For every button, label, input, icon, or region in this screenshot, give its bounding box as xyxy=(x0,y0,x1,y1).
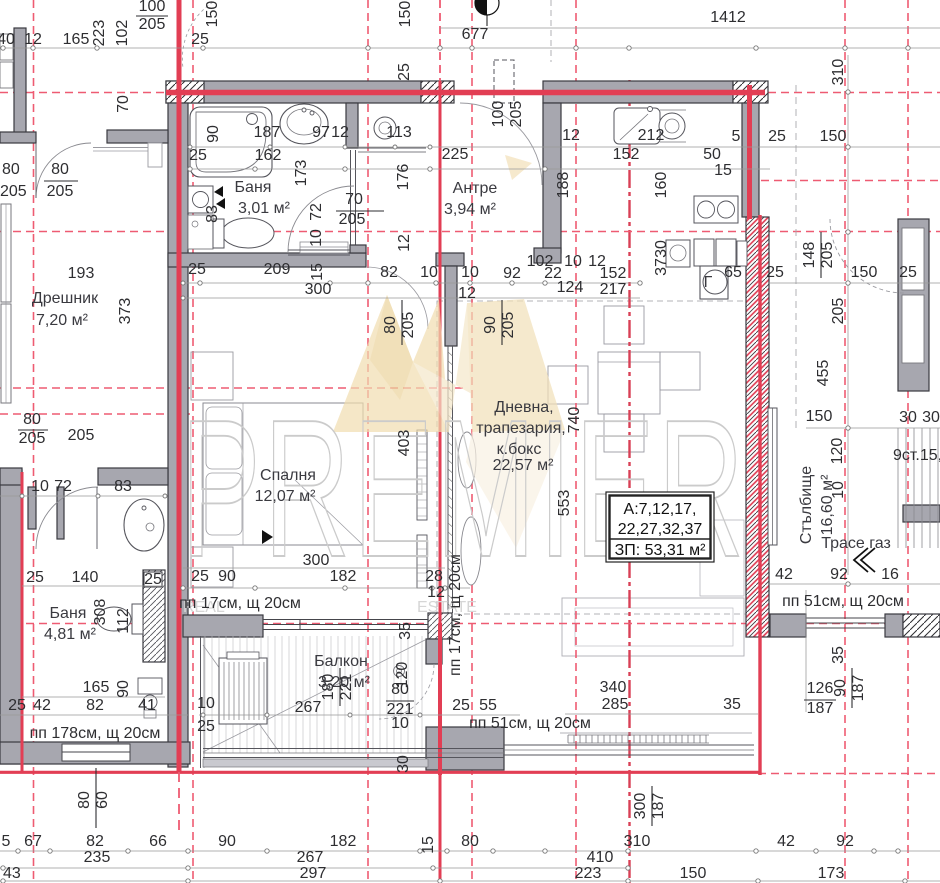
svg-text:188: 188 xyxy=(555,172,572,199)
svg-text:25: 25 xyxy=(26,569,44,586)
svg-text:пп 17см, щ 20см: пп 17см, щ 20см xyxy=(179,595,301,612)
svg-text:205: 205 xyxy=(139,16,166,33)
svg-text:160: 160 xyxy=(653,172,670,199)
svg-text:373: 373 xyxy=(117,298,134,325)
svg-text:40: 40 xyxy=(0,31,15,48)
svg-text:37: 37 xyxy=(653,258,670,276)
svg-text:35: 35 xyxy=(723,696,741,713)
svg-text:3,01 м²: 3,01 м² xyxy=(238,200,291,217)
svg-text:к.бокс: к.бокс xyxy=(497,441,542,458)
svg-text:152: 152 xyxy=(600,265,627,282)
svg-text:182: 182 xyxy=(330,833,357,850)
svg-text:92: 92 xyxy=(836,833,854,850)
svg-text:25: 25 xyxy=(191,31,209,48)
svg-text:223: 223 xyxy=(575,865,602,882)
svg-text:403: 403 xyxy=(396,430,413,457)
svg-text:12: 12 xyxy=(562,127,580,144)
svg-text:212: 212 xyxy=(638,127,665,144)
svg-text:70: 70 xyxy=(345,191,363,208)
svg-text:173: 173 xyxy=(293,160,310,187)
svg-text:176: 176 xyxy=(395,164,412,191)
svg-text:Баня: Баня xyxy=(50,605,87,622)
svg-text:223: 223 xyxy=(91,20,108,47)
svg-text:55: 55 xyxy=(479,697,497,714)
svg-text:16: 16 xyxy=(881,566,899,583)
svg-text:112: 112 xyxy=(115,608,132,634)
svg-text:12: 12 xyxy=(458,285,476,302)
svg-text:5: 5 xyxy=(2,833,11,850)
svg-text:15: 15 xyxy=(714,162,732,179)
svg-text:205: 205 xyxy=(508,101,525,128)
svg-text:4,81 м²: 4,81 м² xyxy=(44,626,97,643)
svg-text:5: 5 xyxy=(732,128,741,145)
svg-text:10: 10 xyxy=(197,695,215,712)
svg-text:пп 51см, щ 20см: пп 51см, щ 20см xyxy=(782,593,904,610)
svg-text:1412: 1412 xyxy=(710,9,746,26)
svg-text:10: 10 xyxy=(830,481,847,499)
svg-text:90: 90 xyxy=(832,679,849,697)
svg-text:205: 205 xyxy=(830,298,847,325)
svg-text:90: 90 xyxy=(218,568,236,585)
svg-text:25: 25 xyxy=(191,568,209,585)
svg-text:25: 25 xyxy=(396,63,413,81)
svg-text:80: 80 xyxy=(51,161,69,178)
svg-text:205: 205 xyxy=(819,242,836,269)
svg-text:300: 300 xyxy=(305,281,332,298)
svg-text:82: 82 xyxy=(380,264,398,281)
svg-text:82: 82 xyxy=(86,833,104,850)
svg-text:72: 72 xyxy=(308,203,325,221)
svg-text:50: 50 xyxy=(703,146,721,163)
svg-text:41: 41 xyxy=(138,697,156,714)
svg-text:187: 187 xyxy=(850,675,867,702)
svg-text:90: 90 xyxy=(482,316,499,334)
svg-text:182: 182 xyxy=(330,568,357,585)
svg-text:65: 65 xyxy=(724,264,742,281)
svg-text:3,94 м²: 3,94 м² xyxy=(444,201,497,218)
svg-text:Трасе газ: Трасе газ xyxy=(821,535,891,552)
svg-text:193: 193 xyxy=(68,265,95,282)
svg-text:677: 677 xyxy=(462,26,489,43)
svg-text:80: 80 xyxy=(23,411,41,428)
svg-text:340: 340 xyxy=(600,679,627,696)
svg-text:165: 165 xyxy=(63,31,90,48)
svg-text:67: 67 xyxy=(24,833,42,850)
svg-text:Спалня: Спалня xyxy=(260,467,316,484)
svg-text:205: 205 xyxy=(500,312,517,339)
svg-text:30: 30 xyxy=(922,409,940,426)
svg-text:Дрешник: Дрешник xyxy=(32,290,99,307)
svg-text:410: 410 xyxy=(587,849,614,866)
svg-text:35: 35 xyxy=(397,622,414,640)
svg-text:113: 113 xyxy=(386,124,412,141)
svg-text:пп 17см, щ 20см: пп 17см, щ 20см xyxy=(447,554,464,676)
svg-text:165: 165 xyxy=(83,679,110,696)
svg-text:пп 178см, щ 20см: пп 178см, щ 20см xyxy=(30,725,161,742)
svg-text:310: 310 xyxy=(830,59,847,86)
svg-text:30: 30 xyxy=(395,755,412,773)
svg-text:173: 173 xyxy=(818,865,845,882)
svg-text:10: 10 xyxy=(461,264,479,281)
svg-text:308: 308 xyxy=(92,599,109,626)
svg-text:187: 187 xyxy=(650,793,667,820)
svg-text:15: 15 xyxy=(420,836,437,854)
svg-text:285: 285 xyxy=(602,696,629,713)
svg-text:А:7,12,17,: А:7,12,17, xyxy=(624,501,697,518)
svg-text:267: 267 xyxy=(297,849,324,866)
svg-text:235: 235 xyxy=(84,849,111,866)
svg-text:150: 150 xyxy=(851,264,878,281)
svg-text:Балкон: Балкон xyxy=(314,653,368,670)
svg-text:66: 66 xyxy=(149,833,167,850)
svg-text:10: 10 xyxy=(31,478,49,495)
svg-text:10: 10 xyxy=(391,715,409,732)
svg-text:Стълбище: Стълбище xyxy=(798,466,815,544)
svg-text:97: 97 xyxy=(312,124,330,141)
svg-text:80: 80 xyxy=(382,316,399,334)
svg-text:25: 25 xyxy=(768,128,786,145)
svg-text:25: 25 xyxy=(766,264,784,281)
svg-text:297: 297 xyxy=(300,865,327,882)
svg-text:80: 80 xyxy=(2,161,20,178)
svg-text:126: 126 xyxy=(807,680,834,697)
svg-text:43: 43 xyxy=(3,865,21,882)
svg-text:92: 92 xyxy=(503,265,521,282)
svg-text:Г: Г xyxy=(704,274,713,291)
svg-text:205: 205 xyxy=(47,183,74,200)
svg-text:80: 80 xyxy=(76,791,93,809)
svg-text:10: 10 xyxy=(308,229,325,247)
svg-text:42: 42 xyxy=(777,833,795,850)
svg-text:22,57 м²: 22,57 м² xyxy=(493,457,554,474)
svg-text:35: 35 xyxy=(830,646,847,664)
svg-text:553: 553 xyxy=(556,490,573,517)
svg-text:25: 25 xyxy=(188,261,206,278)
svg-text:трапезария,: трапезария, xyxy=(476,420,566,437)
svg-text:102: 102 xyxy=(114,20,131,47)
svg-text:30: 30 xyxy=(653,240,670,258)
svg-text:90: 90 xyxy=(115,680,132,698)
svg-text:83: 83 xyxy=(204,205,221,223)
svg-text:30: 30 xyxy=(899,409,917,426)
svg-text:7,20 м²: 7,20 м² xyxy=(36,312,89,329)
svg-text:150: 150 xyxy=(820,128,847,145)
svg-text:455: 455 xyxy=(815,360,832,387)
svg-text:205: 205 xyxy=(339,211,366,228)
svg-text:310: 310 xyxy=(624,833,651,850)
svg-text:209: 209 xyxy=(264,261,291,278)
svg-text:148: 148 xyxy=(801,242,818,269)
svg-text:70: 70 xyxy=(115,95,132,113)
svg-text:ЗП: 53,31 м²: ЗП: 53,31 м² xyxy=(615,542,707,559)
svg-text:42: 42 xyxy=(775,566,793,583)
svg-text:28: 28 xyxy=(425,568,443,585)
svg-text:25: 25 xyxy=(899,264,917,281)
svg-text:12: 12 xyxy=(24,31,42,48)
svg-text:124: 124 xyxy=(557,279,584,296)
svg-text:205: 205 xyxy=(400,312,417,339)
svg-text:100: 100 xyxy=(139,0,166,15)
svg-text:42: 42 xyxy=(33,697,51,714)
svg-text:22,27,32,37: 22,27,32,37 xyxy=(618,521,703,538)
svg-text:187: 187 xyxy=(807,700,834,717)
svg-text:Баня: Баня xyxy=(235,179,272,196)
svg-text:12,07 м²: 12,07 м² xyxy=(255,488,316,505)
svg-text:205: 205 xyxy=(19,430,46,447)
svg-text:Антре: Антре xyxy=(453,180,498,197)
svg-text:12: 12 xyxy=(427,584,445,601)
svg-text:25: 25 xyxy=(452,697,470,714)
svg-text:90: 90 xyxy=(218,833,236,850)
svg-text:267: 267 xyxy=(295,699,322,716)
svg-text:300: 300 xyxy=(632,793,649,820)
svg-text:150: 150 xyxy=(397,1,414,28)
svg-text:3,20 м²: 3,20 м² xyxy=(318,674,371,691)
svg-text:120: 120 xyxy=(829,438,846,465)
svg-text:9ст.15,8: 9ст.15,8 xyxy=(893,447,940,464)
svg-text:150: 150 xyxy=(680,865,707,882)
svg-text:15: 15 xyxy=(309,263,326,281)
svg-text:25: 25 xyxy=(144,571,162,588)
svg-text:92: 92 xyxy=(830,566,848,583)
svg-text:100: 100 xyxy=(490,101,507,128)
svg-text:25: 25 xyxy=(189,147,207,164)
svg-text:162: 162 xyxy=(255,147,282,164)
svg-text:140: 140 xyxy=(72,569,99,586)
svg-text:82: 82 xyxy=(86,697,104,714)
svg-text:10: 10 xyxy=(564,253,582,270)
svg-text:150: 150 xyxy=(204,1,221,28)
svg-text:225: 225 xyxy=(442,146,469,163)
svg-text:12: 12 xyxy=(331,124,349,141)
svg-text:90: 90 xyxy=(205,125,222,143)
svg-text:150: 150 xyxy=(806,408,833,425)
svg-text:пп 51см, щ 20см: пп 51см, щ 20см xyxy=(469,715,591,732)
svg-text:152: 152 xyxy=(613,146,640,163)
svg-text:120: 120 xyxy=(394,662,411,689)
svg-text:83: 83 xyxy=(114,478,132,495)
svg-text:25: 25 xyxy=(8,697,26,714)
svg-text:25: 25 xyxy=(197,718,215,735)
svg-text:60: 60 xyxy=(94,791,111,809)
svg-text:205: 205 xyxy=(68,427,95,444)
svg-text:187: 187 xyxy=(254,124,281,141)
svg-text:Дневна,: Дневна, xyxy=(494,399,553,416)
svg-text:740: 740 xyxy=(566,407,583,434)
svg-text:12: 12 xyxy=(396,234,413,252)
svg-text:10: 10 xyxy=(420,264,438,281)
svg-text:300: 300 xyxy=(303,552,330,569)
svg-text:217: 217 xyxy=(600,281,627,298)
svg-text:80: 80 xyxy=(461,833,479,850)
svg-text:205: 205 xyxy=(0,183,27,200)
svg-text:72: 72 xyxy=(54,478,72,495)
